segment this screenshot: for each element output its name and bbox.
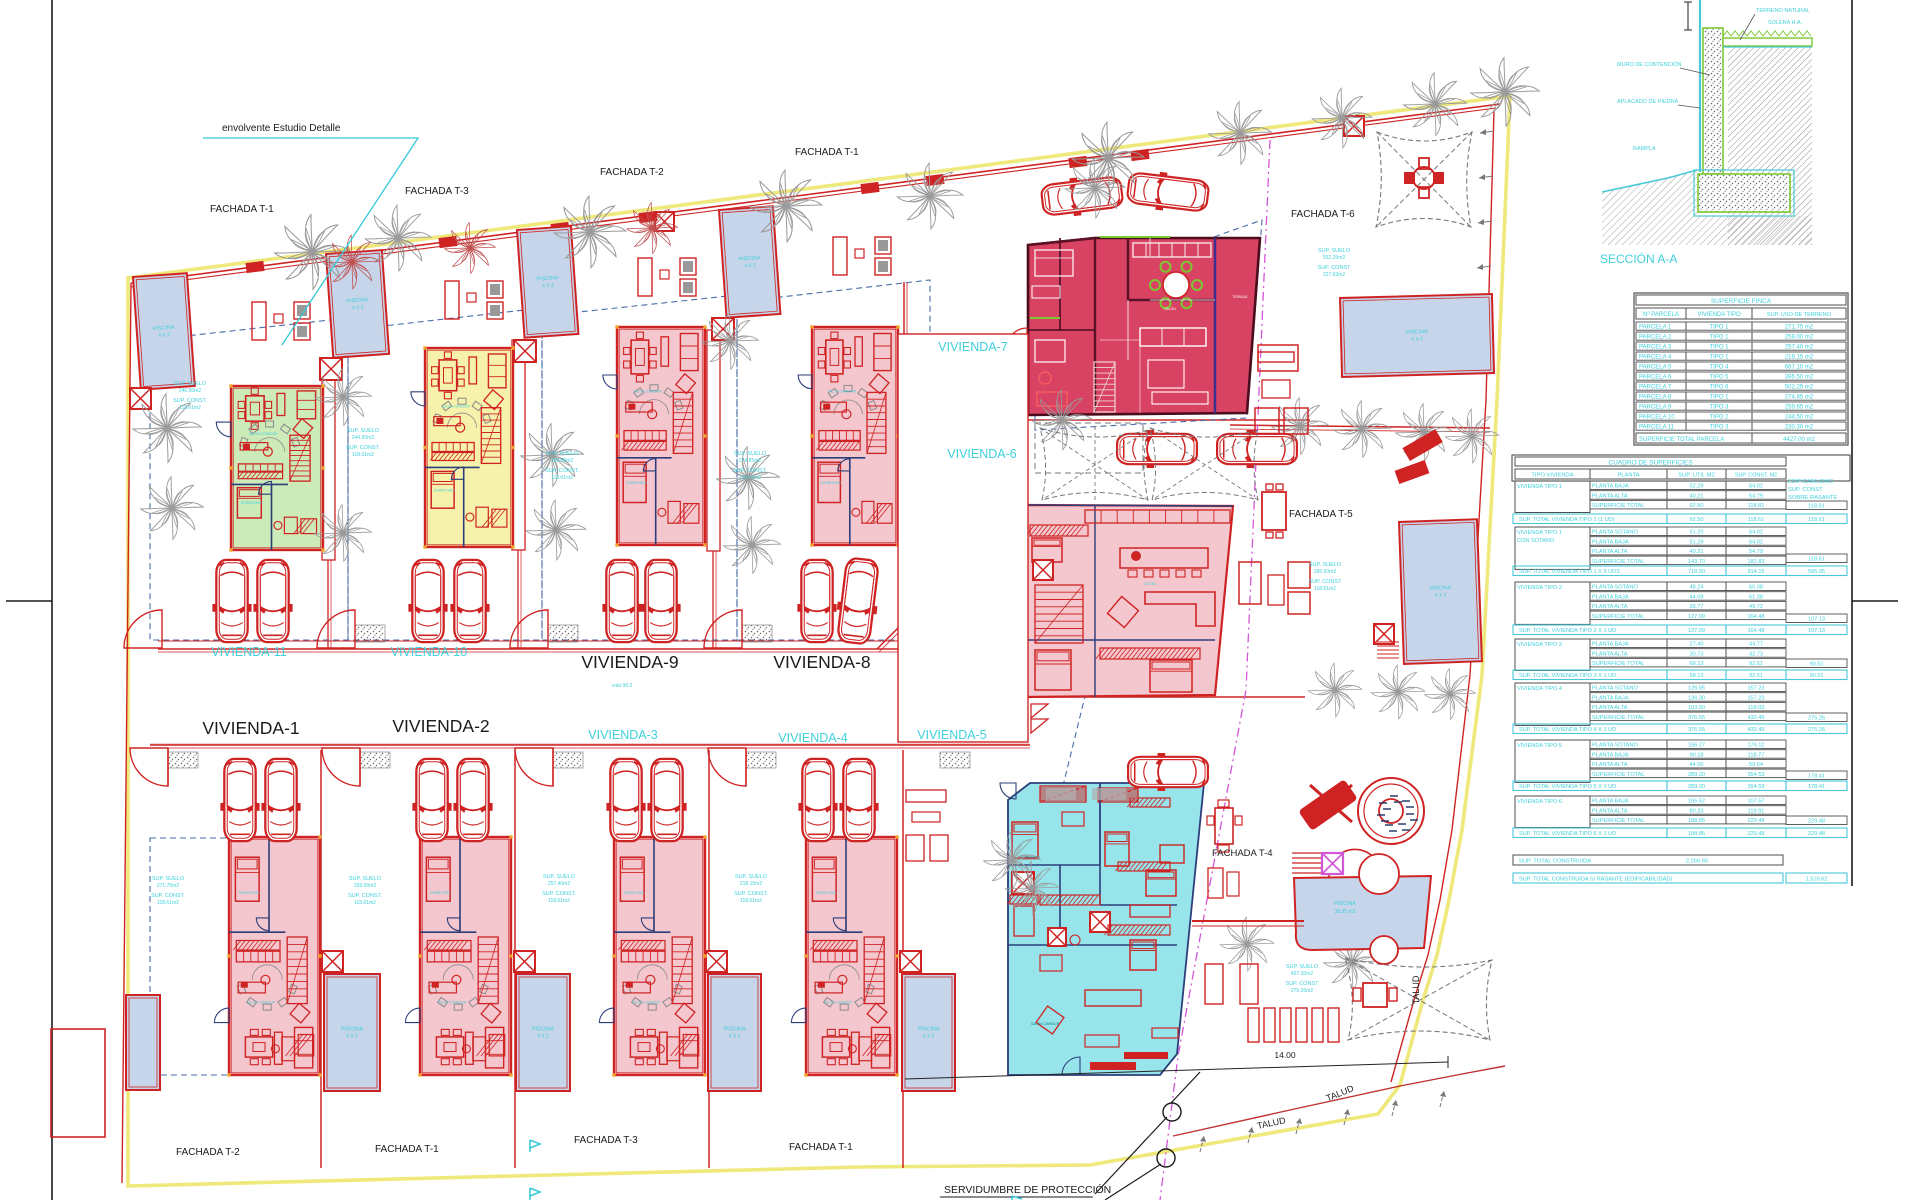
svg-text:PARCELA 4: PARCELA 4 [1639, 355, 1672, 361]
svg-text:SALON COMEDOR: SALON COMEDOR [1031, 1022, 1060, 1026]
svg-text:PARCELA 7: PARCELA 7 [1639, 385, 1672, 391]
svg-text:157.23: 157.23 [1747, 695, 1764, 701]
svg-text:PISCINA: PISCINA [1334, 901, 1356, 907]
svg-text:60.38: 60.38 [1749, 585, 1763, 591]
svg-text:SUP. CONST.: SUP. CONST. [173, 398, 207, 404]
svg-text:SUP. SUELO: SUP. SUELO [347, 428, 380, 434]
svg-text:178.41: 178.41 [1808, 774, 1825, 780]
svg-text:259.65m2: 259.65m2 [551, 458, 573, 464]
svg-text:376.55: 376.55 [1688, 727, 1705, 733]
svg-text:230.30 m2: 230.30 m2 [1785, 425, 1814, 431]
svg-text:118.61m2: 118.61m2 [740, 898, 762, 904]
svg-text:4 X 2: 4 X 2 [1435, 592, 1447, 598]
svg-text:PARCELA 2: PARCELA 2 [1639, 335, 1672, 341]
svg-text:127.09: 127.09 [1688, 628, 1705, 634]
svg-text:SUPERFICIE TOTAL: SUPERFICIE TOTAL [1592, 559, 1645, 565]
svg-text:SALON COMEDOR: SALON COMEDOR [438, 1001, 467, 1005]
svg-text:TIPO 1: TIPO 1 [1709, 325, 1729, 331]
svg-text:64.02: 64.02 [1749, 484, 1763, 490]
svg-text:VIVIENDA-10: VIVIENDA-10 [391, 645, 467, 659]
svg-text:SUP. USO DE TERRENO: SUP. USO DE TERRENO [1767, 312, 1832, 318]
svg-text:DORMITORIO: DORMITORIO [430, 891, 451, 895]
svg-text:502.25 m2: 502.25 m2 [1785, 385, 1814, 391]
svg-text:595.05: 595.05 [1808, 569, 1825, 575]
svg-text:246.50m2: 246.50m2 [179, 388, 201, 394]
svg-text:61.38: 61.38 [1749, 594, 1763, 600]
svg-text:TIPO 3: TIPO 3 [1709, 405, 1729, 411]
svg-text:TIPO 3: TIPO 3 [1709, 425, 1729, 431]
svg-text:DORMITORIO: DORMITORIO [239, 891, 260, 895]
svg-text:4 X 2: 4 X 2 [346, 1034, 358, 1040]
svg-text:SUP. TOTAL VIVIENDA TIPO 1 X 5: SUP. TOTAL VIVIENDA TIPO 1 X 5 UDS [1519, 569, 1620, 575]
svg-text:395.50m2: 395.50m2 [1314, 569, 1336, 575]
svg-text:54.79: 54.79 [1749, 549, 1763, 555]
svg-text:49.72: 49.72 [1749, 604, 1763, 610]
svg-text:PLANTA ALTA: PLANTA ALTA [1592, 762, 1628, 768]
svg-text:VIVIENDA TIPO 5: VIVIENDA TIPO 5 [1517, 743, 1562, 749]
svg-text:1,510.62: 1,510.62 [1806, 877, 1828, 883]
svg-text:64.02: 64.02 [1749, 539, 1763, 545]
svg-text:188.85: 188.85 [1688, 818, 1705, 824]
svg-text:48.24: 48.24 [1690, 585, 1704, 591]
svg-text:TERRENO NATURAL: TERRENO NATURAL [1756, 8, 1810, 14]
svg-text:SALON COMEDOR: SALON COMEDOR [632, 1001, 661, 1005]
svg-text:DORMITORIO: DORMITORIO [626, 481, 647, 485]
svg-text:TERRAZA: TERRAZA [1233, 295, 1249, 299]
svg-text:SUPERFICIE TOTAL: SUPERFICIE TOTAL [1592, 772, 1645, 778]
svg-text:157.23: 157.23 [1747, 686, 1764, 692]
svg-text:SUP. TOTAL CONSTRUIDA S/ RASAN: SUP. TOTAL CONSTRUIDA S/ RASANTE (EDIFIC… [1519, 877, 1672, 883]
svg-text:14.00: 14.00 [1274, 1050, 1296, 1060]
svg-text:51.20: 51.20 [1690, 530, 1704, 536]
svg-text:SUP. UTIL M2: SUP. UTIL M2 [1678, 473, 1714, 479]
svg-text:118.61: 118.61 [1808, 517, 1825, 523]
svg-text:SUP. CONST.: SUP. CONST. [542, 891, 576, 897]
svg-text:4 X 2: 4 X 2 [537, 1034, 549, 1040]
svg-text:PLANTA ALTA: PLANTA ALTA [1592, 808, 1628, 814]
svg-text:TIPO 2: TIPO 2 [1709, 415, 1729, 421]
svg-text:TIPO 1: TIPO 1 [1709, 355, 1729, 361]
svg-text:VIVIENDA TIPO 2: VIVIENDA TIPO 2 [1517, 585, 1562, 591]
svg-text:SUP. TOTAL VIVIENDA TIPO 2 X 1: SUP. TOTAL VIVIENDA TIPO 2 X 1 UD [1519, 628, 1616, 634]
svg-text:VIVIENDA-4: VIVIENDA-4 [778, 731, 848, 745]
svg-text:SUP. CONST.: SUP. CONST. [545, 468, 579, 474]
svg-text:SALON COMEDOR: SALON COMEDOR [828, 389, 857, 393]
svg-text:229.48: 229.48 [1808, 831, 1825, 837]
svg-text:SUP. SUELO: SUP. SUELO [152, 876, 185, 882]
svg-text:SOLERA H.A.: SOLERA H.A. [1768, 20, 1803, 26]
svg-text:FACHADA T-2: FACHADA T-2 [600, 167, 664, 178]
svg-text:275.26: 275.26 [1808, 727, 1825, 733]
svg-text:TIPO 6: TIPO 6 [1709, 385, 1729, 391]
svg-text:VIVIENDA TIPO 4: VIVIENDA TIPO 4 [1517, 686, 1562, 692]
svg-text:107.13: 107.13 [1808, 617, 1825, 623]
svg-text:SALON COMEDOR: SALON COMEDOR [824, 1001, 853, 1005]
svg-text:244.50m2: 244.50m2 [352, 435, 374, 441]
svg-text:FACHADA T-2: FACHADA T-2 [176, 1147, 240, 1158]
svg-text:90.51: 90.51 [1810, 662, 1824, 668]
svg-text:552.25m2: 552.25m2 [1323, 255, 1345, 261]
svg-text:164.48: 164.48 [1747, 628, 1764, 634]
svg-text:PISCINA: PISCINA [341, 1027, 363, 1033]
svg-text:432.49: 432.49 [1747, 715, 1764, 721]
svg-text:SALON COMEDOR: SALON COMEDOR [634, 389, 663, 393]
svg-text:SUP. CONST: SUP. CONST [1788, 487, 1823, 493]
svg-text:229.48: 229.48 [1747, 831, 1764, 837]
svg-text:218.15 m2: 218.15 m2 [1785, 355, 1814, 361]
svg-text:VIVIENDA TIPO 3: VIVIENDA TIPO 3 [1517, 642, 1562, 648]
svg-text:CON SOTANO: CON SOTANO [1517, 538, 1555, 544]
svg-text:SECCIÓN A-A: SECCIÓN A-A [1600, 251, 1677, 266]
svg-text:118.61m2: 118.61m2 [551, 475, 573, 481]
svg-text:432.49: 432.49 [1747, 727, 1764, 733]
svg-text:289.20: 289.20 [1688, 772, 1705, 778]
svg-text:VIVIENDA-1: VIVIENDA-1 [202, 718, 299, 738]
svg-text:PLANTA BAJA: PLANTA BAJA [1592, 594, 1629, 600]
svg-text:118.61m2: 118.61m2 [157, 900, 179, 906]
svg-text:30.73: 30.73 [1690, 651, 1704, 657]
svg-text:VIVIENDA TIPO 6: VIVIENDA TIPO 6 [1517, 799, 1562, 805]
svg-text:PLANTA BAJA: PLANTA BAJA [1592, 799, 1629, 805]
svg-text:103.50: 103.50 [1688, 705, 1705, 711]
svg-text:PARCELA 9: PARCELA 9 [1639, 405, 1672, 411]
svg-text:92.50: 92.50 [1690, 503, 1704, 509]
svg-text:VIVIENDA-11: VIVIENDA-11 [211, 645, 287, 659]
svg-text:107.57: 107.57 [1747, 799, 1764, 805]
svg-text:TIPO 1: TIPO 1 [1709, 345, 1729, 351]
svg-text:156.27: 156.27 [1688, 743, 1705, 749]
svg-text:52.29: 52.29 [1690, 484, 1704, 490]
svg-text:SUPERFICIE TOTAL: SUPERFICIE TOTAL [1592, 614, 1645, 620]
svg-text:354.53: 354.53 [1747, 784, 1764, 790]
svg-text:PLANTA BAJA: PLANTA BAJA [1592, 752, 1629, 758]
svg-text:FACHADA T-6: FACHADA T-6 [1291, 209, 1355, 220]
svg-text:259.65 m2: 259.65 m2 [1785, 405, 1814, 411]
svg-text:TIPO 1: TIPO 1 [1709, 335, 1729, 341]
svg-text:FACHADA T-1: FACHADA T-1 [375, 1144, 439, 1155]
svg-text:SUPERFICIE TOTAL PARCELA: SUPERFICIE TOTAL PARCELA [1639, 437, 1724, 443]
svg-text:PARCELA 1: PARCELA 1 [1639, 325, 1672, 331]
svg-text:PARCELA 11: PARCELA 11 [1639, 425, 1675, 431]
svg-text:PISCINA: PISCINA [1406, 329, 1428, 336]
svg-text:DORMITORIO: DORMITORIO [816, 891, 837, 895]
svg-text:227.63m2: 227.63m2 [1323, 272, 1345, 278]
svg-text:PLANTA SOTANO: PLANTA SOTANO [1592, 743, 1638, 749]
svg-text:RAMPLA: RAMPLA [1633, 146, 1656, 152]
svg-text:275.26: 275.26 [1808, 716, 1825, 722]
svg-text:718.50: 718.50 [1688, 569, 1705, 575]
svg-text:44.00: 44.00 [1690, 762, 1704, 768]
svg-text:SUP. SUELO: SUP. SUELO [735, 874, 768, 880]
svg-text:90.18: 90.18 [1690, 752, 1704, 758]
svg-text:68.13: 68.13 [1690, 673, 1704, 679]
svg-text:SALON COMEDOR: SALON COMEDOR [247, 1001, 276, 1005]
svg-text:DORMITORIO: DORMITORIO [434, 488, 455, 492]
svg-text:PARCELA 6: PARCELA 6 [1639, 375, 1672, 381]
svg-text:cota 96.2: cota 96.2 [612, 683, 633, 689]
svg-text:PLANTA SOTANO: PLANTA SOTANO [1592, 530, 1638, 536]
svg-text:4 X 2: 4 X 2 [729, 1034, 741, 1040]
svg-text:118.61m2: 118.61m2 [179, 405, 201, 411]
svg-text:PLANTA ALTA: PLANTA ALTA [1592, 493, 1628, 499]
svg-text:92.51: 92.51 [1749, 661, 1763, 667]
svg-text:PLANTA SOTANO: PLANTA SOTANO [1592, 686, 1638, 692]
svg-text:SUP. TOTAL VIVIENDA TIPO 6 X 1: SUP. TOTAL VIVIENDA TIPO 6 X 1 UD [1519, 831, 1616, 837]
svg-text:PLANTA BAJA: PLANTA BAJA [1592, 539, 1629, 545]
svg-text:PISCINA: PISCINA [723, 1027, 745, 1033]
svg-text:VIVIENDA TIPO 1: VIVIENDA TIPO 1 [1517, 484, 1562, 490]
svg-text:SOBRE RASANTE: SOBRE RASANTE [1788, 495, 1837, 501]
svg-text:SUP. SUELO: SUP. SUELO [1318, 248, 1351, 254]
svg-text:118.81: 118.81 [1748, 503, 1765, 509]
svg-text:42.73: 42.73 [1749, 651, 1763, 657]
svg-text:EDIFICABILIDAD: EDIFICABILIDAD [1788, 479, 1833, 485]
svg-text:SUP. TOTAL CONSTRUIDA: SUP. TOTAL CONSTRUIDA [1519, 859, 1591, 865]
svg-text:229.48: 229.48 [1747, 818, 1764, 824]
svg-text:SALON COMEDOR: SALON COMEDOR [249, 432, 278, 436]
svg-text:APLACADO DE PIEDRA: APLACADO DE PIEDRA [1617, 99, 1678, 105]
svg-text:40.21: 40.21 [1690, 493, 1704, 499]
svg-text:4 X 2: 4 X 2 [352, 304, 364, 311]
svg-text:VIVIENDA-7: VIVIENDA-7 [938, 340, 1008, 354]
svg-text:SUPERFICIE TOTAL: SUPERFICIE TOTAL [1592, 715, 1645, 721]
svg-text:PLANTA ALTA: PLANTA ALTA [1592, 651, 1628, 657]
svg-text:SUP. SUELO: SUP. SUELO [546, 451, 579, 457]
svg-text:4 X 2: 4 X 2 [923, 1034, 935, 1040]
svg-text:CUADRO DE SUPERFICIES: CUADRO DE SUPERFICIES [1608, 460, 1693, 467]
svg-text:80.33: 80.33 [1690, 808, 1704, 814]
svg-text:105.52: 105.52 [1688, 799, 1705, 805]
svg-text:92.50: 92.50 [1690, 517, 1704, 523]
svg-text:DORMITORIO: DORMITORIO [821, 481, 842, 485]
svg-text:38.35 m2: 38.35 m2 [1335, 909, 1356, 915]
svg-text:164.48: 164.48 [1747, 614, 1764, 620]
svg-text:118.61m2: 118.61m2 [548, 898, 570, 904]
svg-text:44.77: 44.77 [1749, 642, 1763, 648]
svg-text:SERVIDUMBRE DE PROTECCIÓN: SERVIDUMBRE DE PROTECCIÓN [944, 1183, 1111, 1196]
svg-text:PISCINA: PISCINA [532, 1027, 554, 1033]
svg-text:118.61m2: 118.61m2 [1314, 586, 1336, 592]
svg-text:SUP. CONST: SUP. CONST [1318, 265, 1352, 271]
svg-text:119.91: 119.91 [1748, 808, 1765, 814]
svg-text:TIPO 1: TIPO 1 [1709, 395, 1729, 401]
svg-text:VIVIENDA-2: VIVIENDA-2 [392, 716, 489, 736]
svg-text:274.85m2: 274.85m2 [739, 458, 761, 464]
svg-text:4 X 2: 4 X 2 [744, 263, 756, 270]
svg-text:SUP. CONST: SUP. CONST [1309, 579, 1343, 585]
svg-text:467.10m2: 467.10m2 [1291, 971, 1313, 977]
svg-text:PARCELA 5: PARCELA 5 [1639, 365, 1672, 371]
svg-text:136.30: 136.30 [1688, 695, 1705, 701]
svg-text:envolvente Estudio Detalle: envolvente Estudio Detalle [222, 123, 341, 134]
svg-text:182.83: 182.83 [1747, 559, 1764, 565]
svg-text:54.79: 54.79 [1749, 493, 1763, 499]
svg-text:SUP. SUELO: SUP. SUELO [1286, 964, 1319, 970]
svg-text:259.00 m2: 259.00 m2 [1785, 335, 1814, 341]
svg-text:68.13: 68.13 [1690, 661, 1704, 667]
svg-text:40.21: 40.21 [1690, 549, 1704, 555]
svg-text:667.10 m2: 667.10 m2 [1785, 365, 1814, 371]
svg-text:PISCINA: PISCINA [1429, 585, 1452, 592]
svg-text:PLANTA ALTA: PLANTA ALTA [1592, 604, 1628, 610]
svg-text:SUP. SUELO: SUP. SUELO [543, 874, 576, 880]
svg-text:DORMITORIO: DORMITORIO [241, 501, 262, 505]
svg-text:PLANTA BAJA: PLANTA BAJA [1592, 695, 1629, 701]
svg-text:SUP. SUELO: SUP. SUELO [349, 876, 382, 882]
svg-text:35.77: 35.77 [1690, 604, 1704, 610]
svg-text:127.09: 127.09 [1688, 614, 1705, 620]
svg-text:126.85: 126.85 [1688, 686, 1705, 692]
svg-text:376.55: 376.55 [1688, 715, 1705, 721]
svg-text:259.00m2: 259.00m2 [354, 883, 376, 889]
svg-text:PLANTA SOTANO: PLANTA SOTANO [1592, 585, 1638, 591]
svg-text:118.61: 118.61 [1808, 557, 1825, 563]
svg-text:143.70: 143.70 [1688, 559, 1705, 565]
svg-text:SUP. CONST.: SUP. CONST. [348, 893, 382, 899]
svg-text:59.64: 59.64 [1749, 762, 1763, 768]
svg-text:VIVIENDA TIPO: VIVIENDA TIPO [1697, 312, 1741, 318]
svg-text:MURO DE CONTENCIÓN: MURO DE CONTENCIÓN [1617, 61, 1682, 68]
svg-text:SUP. TOTAL VIVIENDA TIPO 1 (1: SUP. TOTAL VIVIENDA TIPO 1 (1 UD) [1519, 517, 1615, 523]
svg-text:2,266.65: 2,266.65 [1686, 859, 1709, 865]
svg-text:SUP. CONST.: SUP. CONST. [734, 891, 768, 897]
svg-text:107.13: 107.13 [1808, 628, 1825, 634]
svg-text:51.29: 51.29 [1690, 539, 1704, 545]
svg-text:244.50 m2: 244.50 m2 [1785, 415, 1814, 421]
svg-text:SUP. SUELO: SUP. SUELO [1309, 562, 1342, 568]
svg-text:SALON COMEDOR: SALON COMEDOR [442, 405, 471, 409]
svg-text:257.40m2: 257.40m2 [548, 881, 570, 887]
svg-text:VIVIENDA-5: VIVIENDA-5 [917, 728, 987, 742]
svg-text:90.51: 90.51 [1810, 673, 1824, 679]
svg-text:354.53: 354.53 [1747, 772, 1764, 778]
svg-text:TIPO 4: TIPO 4 [1709, 365, 1729, 371]
svg-text:PARCELA 8: PARCELA 8 [1639, 395, 1672, 401]
svg-text:271.75 m2: 271.75 m2 [1785, 325, 1814, 331]
svg-text:118.77: 118.77 [1748, 752, 1765, 758]
svg-text:SUP. CONST. M2: SUP. CONST. M2 [1735, 473, 1777, 479]
svg-text:TIPO VIVIENDA: TIPO VIVIENDA [1531, 473, 1573, 479]
svg-text:SUP. CONST.: SUP. CONST. [346, 445, 380, 451]
svg-text:SALON: SALON [1164, 307, 1176, 311]
svg-text:27.40: 27.40 [1690, 642, 1704, 648]
svg-text:188.85: 188.85 [1688, 831, 1705, 837]
svg-text:FACHADA T-5: FACHADA T-5 [1289, 509, 1353, 520]
svg-text:SUPERFICIE TOTAL: SUPERFICIE TOTAL [1592, 503, 1645, 509]
svg-text:SUP. SUELO: SUP. SUELO [174, 381, 207, 387]
svg-text:PISCINA: PISCINA [917, 1027, 939, 1033]
svg-text:TALUD: TALUD [1411, 975, 1421, 1004]
svg-text:DORMITORIO: DORMITORIO [624, 891, 645, 895]
svg-text:FACHADA T-3: FACHADA T-3 [574, 1135, 638, 1146]
svg-text:SUP. TOTAL VIVIENDA TIPO 5 X 1: SUP. TOTAL VIVIENDA TIPO 5 X 1 UD [1519, 784, 1616, 790]
svg-text:PARCELA 3: PARCELA 3 [1639, 345, 1672, 351]
svg-text:118.03: 118.03 [1748, 705, 1765, 711]
svg-text:VIVIENDA-3: VIVIENDA-3 [588, 728, 658, 742]
svg-text:FACHADA T-3: FACHADA T-3 [405, 186, 469, 197]
svg-text:SUP. TOTAL VIVIENDA TIPO 4 X 1: SUP. TOTAL VIVIENDA TIPO 4 X 1 UD [1519, 727, 1616, 733]
svg-text:PARCELA 10: PARCELA 10 [1639, 415, 1675, 421]
svg-text:274.85 m2: 274.85 m2 [1785, 395, 1814, 401]
svg-text:914.15: 914.15 [1747, 569, 1764, 575]
svg-text:PLANTA ALTA: PLANTA ALTA [1592, 549, 1628, 555]
svg-text:SUP. TOTAL VIVIENDA TIPO 3 X 1: SUP. TOTAL VIVIENDA TIPO 3 X 1 UD [1519, 673, 1616, 679]
svg-text:257.40 m2: 257.40 m2 [1785, 345, 1814, 351]
svg-text:SUP. SUELO: SUP. SUELO [734, 451, 767, 457]
svg-text:4 X 2: 4 X 2 [158, 332, 170, 339]
svg-text:FACHADA T-1: FACHADA T-1 [789, 1142, 853, 1153]
svg-text:44.08: 44.08 [1690, 594, 1704, 600]
svg-text:289.20: 289.20 [1688, 784, 1705, 790]
svg-text:Nº PARCELA: Nº PARCELA [1643, 311, 1679, 318]
svg-text:178.41: 178.41 [1808, 784, 1825, 790]
svg-text:FACHADA T-1: FACHADA T-1 [210, 204, 274, 215]
svg-text:4 X 2: 4 X 2 [542, 283, 554, 290]
svg-text:TIPO 5: TIPO 5 [1709, 375, 1729, 381]
svg-text:VIVIENDA-9: VIVIENDA-9 [581, 652, 678, 672]
svg-text:118.61: 118.61 [1748, 517, 1765, 523]
svg-text:4 X 2: 4 X 2 [1411, 336, 1423, 342]
svg-text:PLANTA: PLANTA [1617, 473, 1639, 479]
svg-text:118.61: 118.61 [1808, 504, 1825, 510]
svg-text:218.15m2: 218.15m2 [740, 881, 762, 887]
svg-text:FACHADA T-1: FACHADA T-1 [795, 147, 859, 158]
svg-text:SUPERFICIE TOTAL: SUPERFICIE TOTAL [1592, 661, 1645, 667]
svg-text:176.12: 176.12 [1747, 743, 1764, 749]
svg-text:118.61m2: 118.61m2 [354, 900, 376, 906]
svg-text:SUPERFICIE TOTAL: SUPERFICIE TOTAL [1592, 818, 1645, 824]
svg-text:4427.00 m2: 4427.00 m2 [1783, 437, 1815, 443]
svg-text:118.61m2: 118.61m2 [352, 452, 374, 458]
svg-text:SUPERFICIE FINCA: SUPERFICIE FINCA [1711, 298, 1772, 305]
svg-text:395.50 m2: 395.50 m2 [1785, 375, 1814, 381]
svg-text:275.26m2: 275.26m2 [1291, 988, 1313, 994]
svg-text:SUP. CONST: SUP. CONST [1286, 981, 1320, 987]
svg-text:PLANTA ALTA: PLANTA ALTA [1592, 705, 1628, 711]
svg-text:PLANTA BAJA: PLANTA BAJA [1592, 484, 1629, 490]
svg-text:229.48: 229.48 [1808, 819, 1825, 825]
svg-text:VIVIENDA TIPO 1: VIVIENDA TIPO 1 [1517, 530, 1562, 536]
svg-text:271.75m2: 271.75m2 [157, 883, 179, 889]
svg-text:VIVIENDA-6: VIVIENDA-6 [947, 447, 1017, 461]
svg-text:FACHADA T-4: FACHADA T-4 [1212, 848, 1273, 859]
svg-text:SUP. CONST.: SUP. CONST. [151, 893, 185, 899]
svg-text:92.51: 92.51 [1749, 673, 1763, 679]
svg-text:118.61m2: 118.61m2 [739, 475, 761, 481]
svg-text:VIVIENDA-8: VIVIENDA-8 [773, 652, 870, 672]
svg-text:PLANTA BAJA: PLANTA BAJA [1592, 642, 1629, 648]
svg-text:64.02: 64.02 [1749, 530, 1763, 536]
svg-text:COCINA: COCINA [1144, 582, 1157, 586]
svg-text:SUP. CONST.: SUP. CONST. [733, 468, 767, 474]
